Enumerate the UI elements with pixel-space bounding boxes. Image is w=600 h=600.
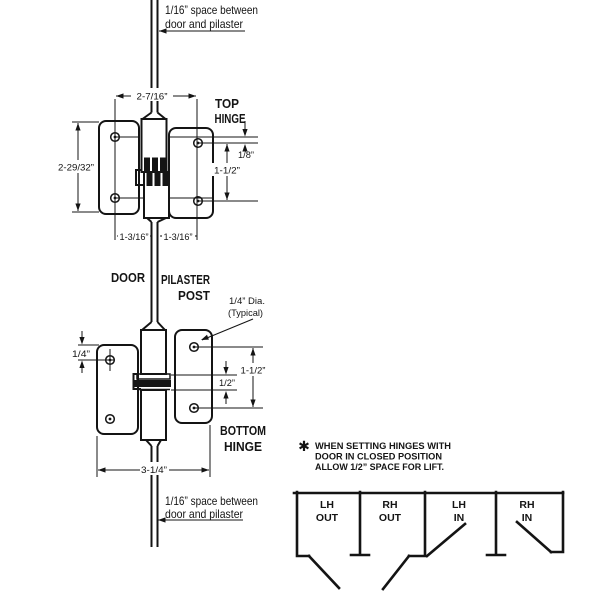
dim-pin-gap: 1/2” [219,378,235,389]
stall-door-rh-out [383,556,409,589]
lift-note-line3: ALLOW 1/2” SPACE FOR LIFT. [315,462,444,472]
dim-bottom-hole-spacing: 1-1/2” [241,366,266,377]
hole-diameter-note: 1/4” Dia. (Typical) [228,296,265,319]
stall-door-rh-in [517,522,551,552]
dim-top-hole-spacing: 1-1/2” [214,166,240,177]
bottom-hinge-label-line1: BOTTOM [220,424,266,438]
bottom-hinge-label-line2: HINGE [224,440,262,454]
bottom-gap-note-line1: 1/16” space between [165,494,258,508]
bottom-hinge-pin [135,374,172,390]
top-hinge-pilaster-plate [169,128,213,218]
door-pilaster-gap-lines-bottom [146,440,161,547]
hole-diameter-note-line2: (Typical) [228,308,263,319]
door-label: DOOR [111,271,145,285]
bottom-gap-note: 1/16” space between door and pilaster [165,494,258,521]
top-gap-note-line2: door and pilaster [165,17,243,31]
hole-diameter-note-line1: 1/4” Dia. [229,296,265,307]
stall-3-label-line2: IN [454,512,465,524]
hinge-installation-drawing: 2-7/16” 2-29/32” 1/8” 1-1/2” 1-3/16” 1-3… [0,0,600,600]
stall-3-label-line1: LH [452,499,466,511]
stall-1-label-line1: LH [320,499,334,511]
stall-4-label-line2: IN [522,512,533,524]
asterisk-icon: ✱ [298,438,310,454]
bottom-hinge-door-plate [97,345,138,434]
top-hinge-teeth [144,158,169,187]
dim-bottom-plate-inset: 1/4” [72,349,90,360]
top-gap-note: 1/16” space between door and pilaster [165,3,258,31]
bottom-gap-note-line2: door and pilaster [165,507,243,521]
stall-2-label-line2: OUT [379,512,402,524]
stall-wall-5 [551,492,563,552]
lift-note-line2: DOOR IN CLOSED POSITION [315,452,442,462]
pilaster-label-line1: PILASTER [161,273,210,287]
stall-wall-1 [297,492,309,556]
dim-top-hole-span: 2-7/16” [137,92,168,103]
lift-note-line1: WHEN SETTING HINGES WITH [315,441,451,451]
dim-leaf-offset: 1/8” [238,150,254,161]
stall-1-label-line2: OUT [316,512,339,524]
stall-wall-3 [409,492,425,556]
lift-note: ✱ WHEN SETTING HINGES WITH DOOR IN CLOSE… [298,438,451,472]
bottom-hinge-upper-post [141,330,166,374]
dim-bottom-hinge-width: 3-1/4” [141,465,167,476]
top-hinge-label-line1: TOP [215,97,239,111]
top-hinge [99,119,213,218]
stall-door-lh-out [309,556,339,588]
stall-swing-diagram: LH OUT RH OUT LH IN RH IN [294,492,563,589]
pilaster-label-line2: POST [178,289,210,303]
dim-door-hole-to-center: 1-3/16” [120,232,149,243]
top-gap-note-line1: 1/16” space between [165,3,258,17]
stall-door-lh-in [427,524,465,556]
stall-4-label-line1: RH [519,499,534,511]
bottom-hinge-lower-post [141,390,166,440]
stall-2-label-line1: RH [382,499,397,511]
dim-top-plate-height: 2-29/32” [58,163,94,174]
top-hinge-label-line2: HINGE [215,112,246,126]
dim-pilaster-hole-to-center: 1-3/16” [164,232,193,243]
